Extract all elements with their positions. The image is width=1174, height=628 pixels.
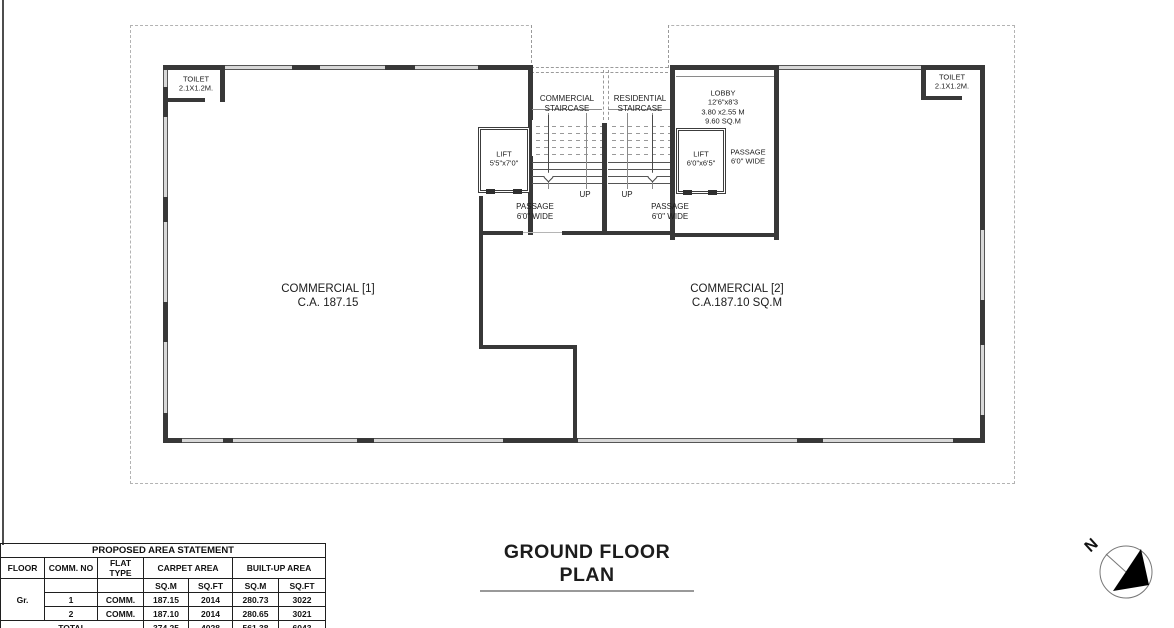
drawing-sheet: TOILET 2.1X1.2M. TOILET 2.1X1.2M. COMMER… (0, 0, 1174, 628)
builtup-sqft-cell: 3022 (279, 593, 326, 607)
flight-line (627, 113, 628, 189)
wall-segment (980, 65, 985, 230)
door-threshold (523, 232, 562, 233)
label-line: 2.1X1.2M. (179, 84, 213, 93)
up-label-commercial: UP (579, 190, 590, 200)
total-label-cell: TOTAL (1, 621, 144, 628)
table-row: TOTAL 374.25 4028 561.38 6043 (1, 621, 326, 628)
lift-right-label: LIFT 6'0"x6'5" (687, 150, 716, 169)
unit-partition-wall (479, 345, 577, 349)
label-line: 6'0"x6'5" (687, 159, 716, 168)
empty-cell (98, 579, 144, 593)
toilet-left-label: TOILET 2.1X1.2M. (179, 75, 213, 94)
wall-segment (357, 438, 374, 443)
passage-right-label: PASSAGE 6'0" WIDE (651, 202, 689, 222)
toilet-left-wall (163, 98, 205, 102)
wall-segment (797, 438, 823, 443)
wall-segment (320, 65, 385, 70)
label-line: 6'0" WIDE (516, 212, 554, 222)
carpet-sqm-cell: 187.10 (144, 607, 189, 621)
wall-segment (778, 65, 921, 70)
label-line: STAIRCASE (614, 104, 666, 114)
label-line: C.A.187.10 SQ.M (690, 297, 784, 311)
lift-door-jamb (683, 190, 692, 195)
north-triangle (1113, 549, 1149, 591)
commercial-2-label: COMMERCIAL [2] C.A.187.10 SQ.M (690, 283, 784, 311)
wall-segment (921, 65, 983, 70)
comm-no-cell: 1 (45, 593, 98, 607)
floor-cell: Gr. (1, 579, 45, 621)
wall-segment (163, 222, 168, 302)
commercial-1-label: COMMERCIAL [1] C.A. 187.15 (281, 283, 375, 311)
col-header-comm-no: COMM. NO (45, 558, 98, 579)
sub-header-sqft: SQ.FT (189, 579, 233, 593)
wall-segment (374, 438, 503, 443)
unit-partition-wall (479, 196, 483, 347)
wall-segment (163, 197, 168, 222)
wall-segment (980, 345, 985, 415)
col-header-flat-type: FLAT TYPE (98, 558, 144, 579)
lift-door-jamb (486, 189, 495, 194)
label-line: STAIRCASE (540, 104, 594, 114)
wall-segment (233, 438, 357, 443)
table-row: Gr. SQ.M SQ.FT SQ.M SQ.FT (1, 579, 326, 593)
residential-staircase-label: RESIDENTIAL STAIRCASE (614, 94, 666, 114)
label-line: 6'0" WIDE (651, 212, 689, 222)
north-line (1106, 554, 1126, 572)
builtup-sqm-cell: 280.65 (233, 607, 279, 621)
total-carpet-sqm: 374.25 (144, 621, 189, 628)
col-header-builtup-area: BUILT-UP AREA (233, 558, 326, 579)
wall-segment (163, 117, 168, 197)
sub-header-sqm: SQ.M (144, 579, 189, 593)
builtup-sqm-cell: 280.73 (233, 593, 279, 607)
label-line: 2.1X1.2M. (935, 82, 969, 91)
wall-segment (503, 438, 578, 443)
boundary-gap (531, 23, 668, 28)
label-line: 12'6"x8'3 (701, 98, 744, 107)
boundary-jog-right (668, 25, 669, 68)
label-line: C.A. 187.15 (281, 297, 375, 311)
residential-staircase-treads (608, 156, 670, 190)
wall-segment (980, 230, 985, 300)
boundary-jog-left (531, 25, 532, 68)
label-line: COMMERCIAL [1] (281, 283, 375, 297)
lobby-right-wall (774, 65, 779, 240)
carpet-sqft-cell: 2014 (189, 607, 233, 621)
label-line: PASSAGE (516, 202, 554, 212)
lobby-inner-wall-line (676, 76, 774, 77)
commercial-staircase-treads (532, 156, 602, 190)
toilet-right-wall (925, 96, 962, 100)
staircase-dashed-wall (531, 67, 668, 68)
wall-segment (163, 302, 168, 342)
toilet-left-wall (220, 65, 225, 102)
sub-header-sqft: SQ.FT (279, 579, 326, 593)
flat-type-cell: COMM. (98, 607, 144, 621)
wall-segment (823, 438, 953, 443)
wall-segment (182, 438, 223, 443)
area-statement-table: PROPOSED AREA STATEMENT FLOOR COMM. NO F… (0, 543, 326, 628)
passage-lobby-label: PASSAGE 6'0" WIDE (730, 148, 765, 167)
lobby-bottom-wall (670, 233, 778, 237)
empty-cell (45, 579, 98, 593)
label-line: 6'0" WIDE (730, 157, 765, 166)
wall-segment (163, 87, 168, 117)
table-row: 1 COMM. 187.15 2014 280.73 3022 (1, 593, 326, 607)
toilet-right-label: TOILET 2.1X1.2M. (935, 73, 969, 92)
wall-segment (478, 65, 532, 70)
commercial-staircase-label: COMMERCIAL STAIRCASE (540, 94, 594, 114)
col-header-carpet-area: CARPET AREA (144, 558, 233, 579)
wall-segment (980, 415, 985, 443)
stair-direction-arrow (548, 115, 549, 175)
commercial-staircase-treads (532, 120, 602, 156)
wall-segment (980, 300, 985, 345)
table-row: 2 COMM. 187.10 2014 280.65 3021 (1, 607, 326, 621)
lift-door-jamb (513, 189, 522, 194)
toilet-right-wall (921, 65, 926, 100)
flight-line (586, 113, 587, 189)
label-line: RESIDENTIAL (614, 94, 666, 104)
passage-wall (562, 231, 606, 235)
wall-segment (385, 65, 415, 70)
table-row: PROPOSED AREA STATEMENT (1, 544, 326, 558)
staircase-divider-dashed (608, 70, 609, 120)
passage-wall (479, 231, 523, 235)
wall-segment (163, 65, 224, 70)
label-line: PASSAGE (730, 148, 765, 157)
label-line: LIFT (687, 150, 716, 159)
wall-segment (223, 438, 233, 443)
wall-segment (415, 65, 478, 70)
passage-left-label: PASSAGE 6'0" WIDE (516, 202, 554, 222)
lobby-top-wall (670, 65, 778, 70)
wall-segment (292, 65, 320, 70)
lobby-label: LOBBY 12'6"x8'3 3.80 x2.55 M 9.60 SQ.M (701, 88, 744, 126)
col-header-floor: FLOOR (1, 558, 45, 579)
drawing-title: GROUND FLOOR PLAN (480, 541, 694, 592)
stair-direction-arrow (652, 115, 653, 175)
total-builtup-sqm: 561.38 (233, 621, 279, 628)
label-line: TOILET (179, 75, 213, 84)
label-line: 5'5"x7'0" (490, 159, 519, 168)
label-line: 9.60 SQ.M (701, 116, 744, 125)
carpet-sqft-cell: 2014 (189, 593, 233, 607)
table-row: FLOOR COMM. NO FLAT TYPE CARPET AREA BUI… (1, 558, 326, 579)
staircase-divider-dashed (603, 70, 604, 120)
label-line: COMMERCIAL [2] (690, 283, 784, 297)
wall-segment (578, 438, 797, 443)
label-line: LIFT (490, 150, 519, 159)
residential-staircase-treads (608, 120, 670, 156)
sheet-edge-line (2, 0, 4, 545)
comm-no-cell: 2 (45, 607, 98, 621)
passage-wall (606, 231, 674, 235)
table-title: PROPOSED AREA STATEMENT (1, 544, 326, 558)
flat-type-cell: COMM. (98, 593, 144, 607)
label-line: TOILET (935, 73, 969, 82)
lift-left-label: LIFT 5'5"x7'0" (490, 150, 519, 169)
label-line: COMMERCIAL (540, 94, 594, 104)
sub-header-sqm: SQ.M (233, 579, 279, 593)
wall-segment (163, 342, 168, 413)
wall-segment (163, 438, 182, 443)
label-line: LOBBY (701, 88, 744, 97)
wall-segment (224, 65, 292, 70)
carpet-sqm-cell: 187.15 (144, 593, 189, 607)
total-builtup-sqft: 6043 (279, 621, 326, 628)
label-line: 3.80 x2.55 M (701, 107, 744, 116)
label-line: PASSAGE (651, 202, 689, 212)
up-label-residential: UP (621, 190, 632, 200)
lift-door-jamb (708, 190, 717, 195)
staircase-dashed-wall (531, 72, 668, 73)
staircase-wall (602, 123, 607, 235)
unit-partition-wall (573, 349, 577, 442)
total-carpet-sqft: 4028 (189, 621, 233, 628)
wall-segment (163, 70, 168, 87)
builtup-sqft-cell: 3021 (279, 607, 326, 621)
